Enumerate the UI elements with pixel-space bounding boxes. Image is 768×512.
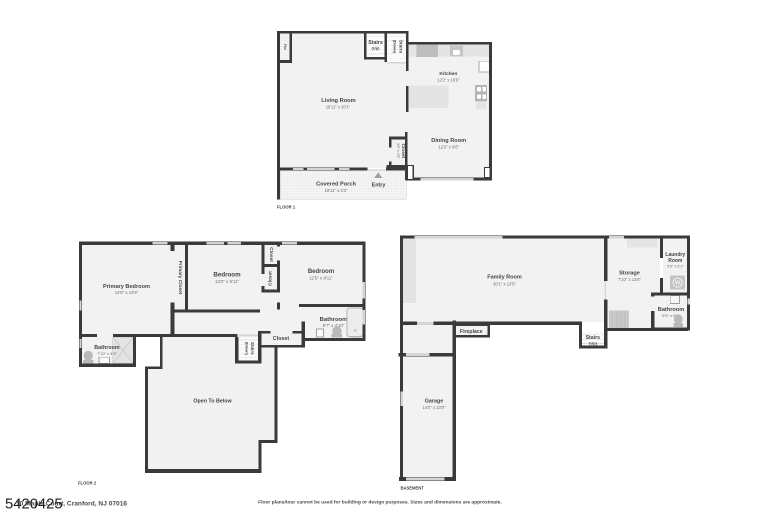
svg-text:3'5" x 5'1": 3'5" x 5'1" (667, 265, 684, 269)
svg-text:30'1" x 13'5": 30'1" x 13'5" (493, 281, 516, 286)
svg-text:12'5" x 8'11": 12'5" x 8'11" (309, 276, 333, 281)
svg-text:Entry: Entry (372, 183, 386, 189)
svg-text:(Down): (Down) (393, 40, 398, 54)
svg-text:Living Room: Living Room (321, 98, 355, 104)
svg-text:Primary Bedroom: Primary Bedroom (103, 284, 150, 290)
svg-text:Dining Room: Dining Room (431, 138, 466, 144)
svg-text:18'11" x 20'1": 18'11" x 20'1" (326, 105, 351, 110)
svg-text:7'10" x 13'5": 7'10" x 13'5" (618, 277, 641, 282)
svg-text:Closet: Closet (268, 271, 274, 286)
svg-text:Closet: Closet (400, 143, 406, 158)
svg-text:Kitchen: Kitchen (439, 71, 457, 77)
svg-text:Garage: Garage (425, 399, 444, 405)
svg-text:Stairs: Stairs (250, 342, 255, 355)
svg-text:Covered Porch: Covered Porch (316, 182, 356, 188)
svg-text:12'8" x 13'6": 12'8" x 13'6" (115, 290, 139, 295)
svg-text:18'11" x 4'3": 18'11" x 4'3" (325, 188, 348, 193)
svg-text:(Up): (Up) (589, 340, 598, 345)
svg-text:Fire: Fire (283, 44, 287, 50)
svg-text:Primary Closet: Primary Closet (177, 261, 183, 295)
svg-text:8'7" x 4'10": 8'7" x 4'10" (323, 323, 345, 328)
svg-text:Family Room: Family Room (487, 275, 522, 281)
svg-text:Room: Room (668, 258, 683, 264)
svg-text:Bedroom: Bedroom (213, 272, 241, 279)
svg-text:Storage: Storage (619, 271, 640, 277)
svg-text:Open To Below: Open To Below (193, 398, 232, 404)
svg-text:Fireplace: Fireplace (460, 329, 483, 335)
svg-text:12'2" x 9'6": 12'2" x 9'6" (438, 145, 459, 150)
svg-text:Closet: Closet (268, 247, 274, 262)
svg-text:Bathroom: Bathroom (320, 317, 348, 323)
svg-text:W: W (675, 281, 681, 287)
svg-text:12'2" x 16'6": 12'2" x 16'6" (437, 77, 460, 82)
svg-text:5420425: 5420425 (5, 497, 63, 512)
svg-text:FLOOR 1: FLOOR 1 (277, 204, 296, 209)
svg-text:Bathroom: Bathroom (658, 307, 684, 313)
svg-text:14'0" x 23'0": 14'0" x 23'0" (423, 405, 446, 410)
svg-text:7'10" x 4'3": 7'10" x 4'3" (97, 351, 117, 356)
svg-text:Closet: Closet (273, 336, 289, 342)
svg-text:13'3" x 9'11": 13'3" x 9'11" (215, 279, 240, 284)
svg-text:(Up): (Up) (372, 46, 381, 51)
svg-text:Floor plans/tour cannot be use: Floor plans/tour cannot be used for buil… (258, 499, 502, 505)
svg-text:BASEMENT: BASEMENT (401, 485, 425, 490)
svg-text:FLOOR 2: FLOOR 2 (78, 481, 97, 486)
svg-text:(Down): (Down) (244, 342, 249, 356)
svg-text:Bedroom: Bedroom (308, 269, 334, 275)
svg-text:3'6" x 4'3": 3'6" x 4'3" (396, 143, 400, 159)
